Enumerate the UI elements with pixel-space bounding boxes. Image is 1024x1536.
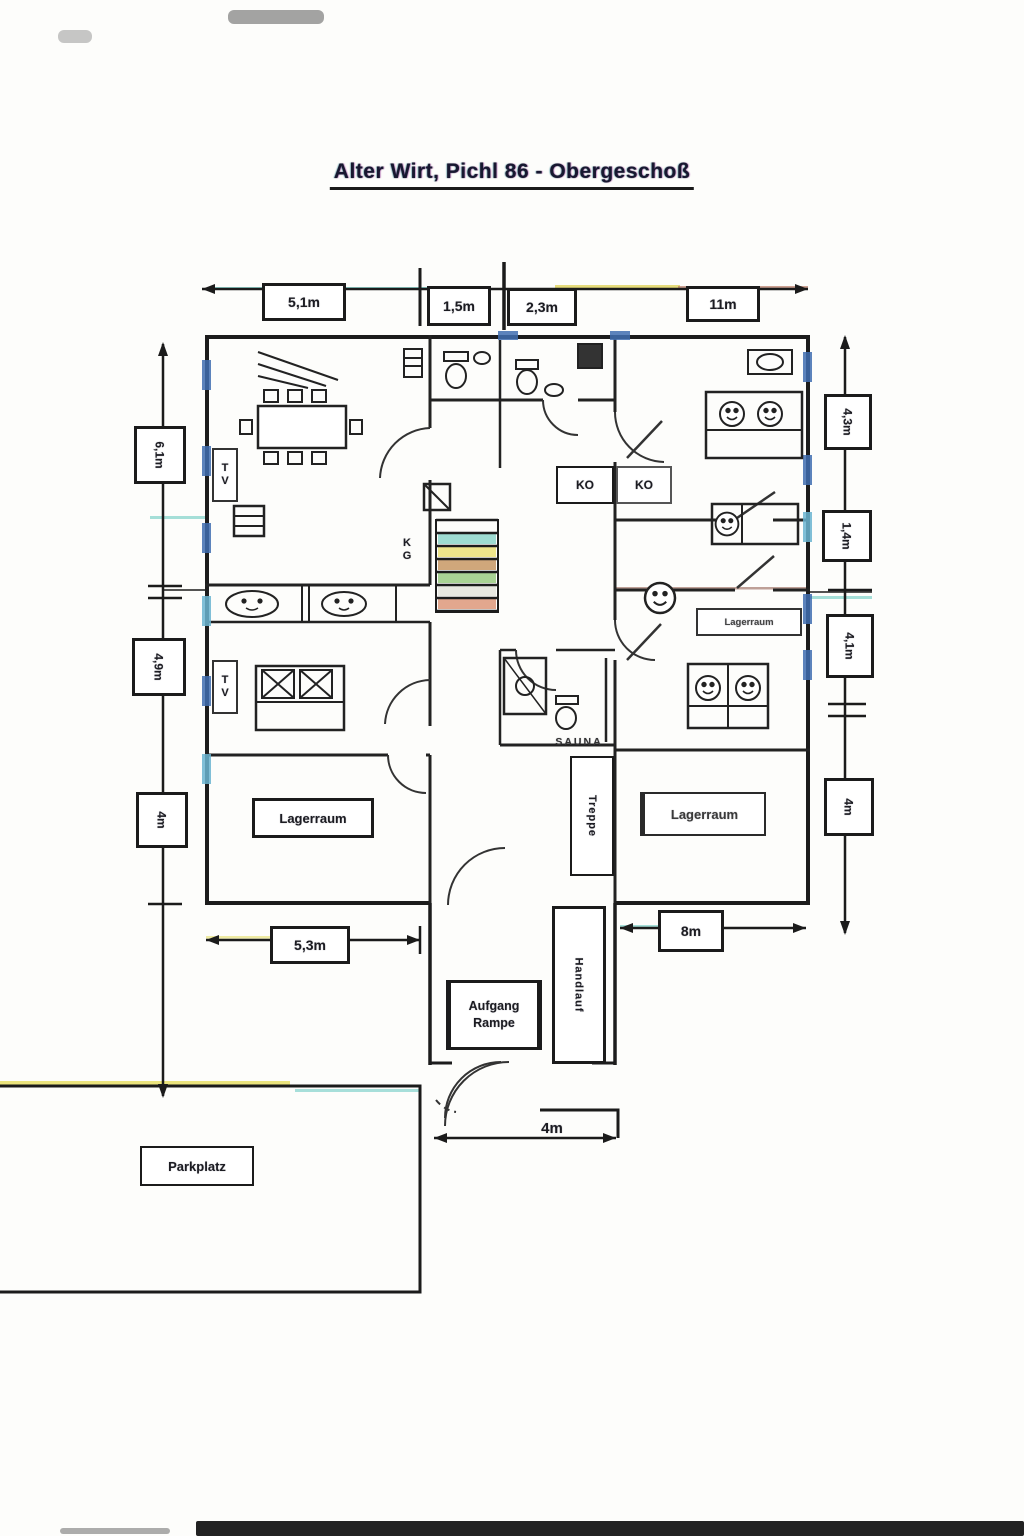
bed-lower-right-icon bbox=[688, 664, 768, 728]
wc-sauna-icon bbox=[556, 696, 578, 729]
dim-top-2: 1,5m bbox=[427, 286, 491, 326]
tv-label-upper: TV bbox=[212, 448, 238, 502]
furniture bbox=[226, 344, 802, 742]
lagerraum-small-label: Lagerraum bbox=[696, 608, 802, 636]
dim-bottom-left: 5,3m bbox=[270, 926, 350, 964]
washbasin-right-icon bbox=[322, 592, 366, 616]
floorplan-drawing bbox=[0, 0, 1024, 1536]
dim-bottom-right: 8m bbox=[658, 910, 724, 952]
sauna-label: SAUNA bbox=[542, 732, 616, 752]
scanned-floorplan-page: Alter Wirt, Pichl 86 - Obergeschoß bbox=[0, 0, 1024, 1536]
person-smiley-icon bbox=[645, 583, 675, 613]
kitchen-unit-icon bbox=[234, 506, 264, 536]
wc-top-middle-icon bbox=[516, 344, 602, 396]
aufgang-rampe-label: Aufgang Rampe bbox=[446, 980, 542, 1050]
dim-left-2: 4,9m bbox=[132, 638, 186, 696]
handlauf-label: Handlauf bbox=[552, 906, 606, 1064]
dim-right-3: 4,1m bbox=[826, 614, 874, 678]
parkplatz-label: Parkplatz bbox=[140, 1146, 254, 1186]
hall-cabinet-icon bbox=[424, 484, 450, 510]
tv-label-lower: TV bbox=[212, 660, 238, 714]
dim-top-4: 11m bbox=[686, 286, 760, 322]
dim-right-4: 4m bbox=[824, 778, 874, 836]
wc-top-left-icon bbox=[444, 352, 490, 388]
dim-left-1: 6,1m bbox=[134, 426, 186, 484]
dim-right-2: 1,4m bbox=[822, 510, 872, 562]
dim-right-1: 4,3m bbox=[824, 394, 872, 450]
vanity-top-right-icon bbox=[748, 350, 792, 374]
washbasin-left-icon bbox=[226, 591, 278, 617]
radiator-icon bbox=[404, 349, 422, 377]
stairs-icon bbox=[436, 520, 498, 612]
bed-upper-right-icon bbox=[706, 392, 802, 458]
dim-left-3: 4m bbox=[136, 792, 188, 848]
lagerraum-right-label: Lagerraum bbox=[640, 792, 766, 836]
dim-top-1: 5,1m bbox=[262, 283, 346, 321]
dining-set-icon bbox=[240, 390, 362, 464]
dim-ramp: 4m bbox=[532, 1116, 572, 1140]
lagerraum-left-label: Lagerraum bbox=[252, 798, 374, 838]
kg-label: KG bbox=[398, 528, 416, 572]
dim-top-3: 2,3m bbox=[507, 288, 577, 326]
bed-lower-left-icon bbox=[256, 666, 344, 730]
counter-hatch bbox=[258, 352, 338, 388]
ko-label-1: KO bbox=[556, 466, 614, 504]
treppe-label: Treppe bbox=[570, 756, 614, 876]
ko-label-2: KO bbox=[616, 466, 672, 504]
bed-middle-right-icon bbox=[712, 504, 798, 544]
